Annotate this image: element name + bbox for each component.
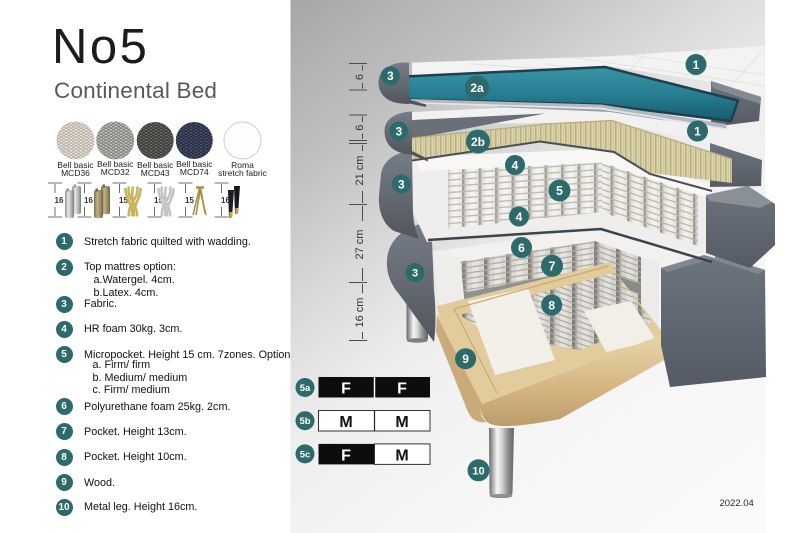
svg-text:6: 6 bbox=[354, 125, 366, 131]
svg-text:9: 9 bbox=[462, 352, 469, 366]
svg-text:M: M bbox=[395, 414, 408, 431]
svg-text:16 cm: 16 cm bbox=[354, 298, 366, 328]
svg-text:F: F bbox=[341, 381, 351, 398]
svg-text:2a: 2a bbox=[470, 81, 484, 95]
svg-text:2022.04: 2022.04 bbox=[720, 498, 754, 509]
svg-text:4: 4 bbox=[516, 210, 523, 224]
svg-text:7: 7 bbox=[549, 259, 556, 273]
svg-text:5c: 5c bbox=[300, 449, 311, 460]
svg-text:F: F bbox=[397, 381, 407, 398]
svg-text:5b: 5b bbox=[299, 416, 310, 427]
svg-text:3: 3 bbox=[395, 124, 402, 138]
svg-text:F: F bbox=[341, 447, 351, 464]
svg-text:10: 10 bbox=[472, 465, 484, 477]
svg-text:5: 5 bbox=[556, 184, 563, 198]
svg-text:3: 3 bbox=[412, 268, 418, 280]
svg-text:3: 3 bbox=[398, 177, 405, 191]
svg-text:4: 4 bbox=[512, 158, 519, 172]
svg-text:M: M bbox=[339, 414, 352, 431]
svg-text:1: 1 bbox=[693, 58, 700, 72]
svg-text:2b: 2b bbox=[471, 135, 485, 149]
svg-text:27 cm: 27 cm bbox=[354, 230, 366, 260]
svg-text:M: M bbox=[395, 447, 408, 464]
svg-text:5a: 5a bbox=[300, 383, 311, 394]
svg-text:6: 6 bbox=[354, 74, 366, 80]
svg-text:1: 1 bbox=[694, 125, 701, 139]
svg-text:8: 8 bbox=[548, 298, 555, 312]
svg-text:21 cm: 21 cm bbox=[354, 156, 366, 186]
svg-text:3: 3 bbox=[387, 69, 394, 83]
svg-text:6: 6 bbox=[518, 241, 525, 255]
